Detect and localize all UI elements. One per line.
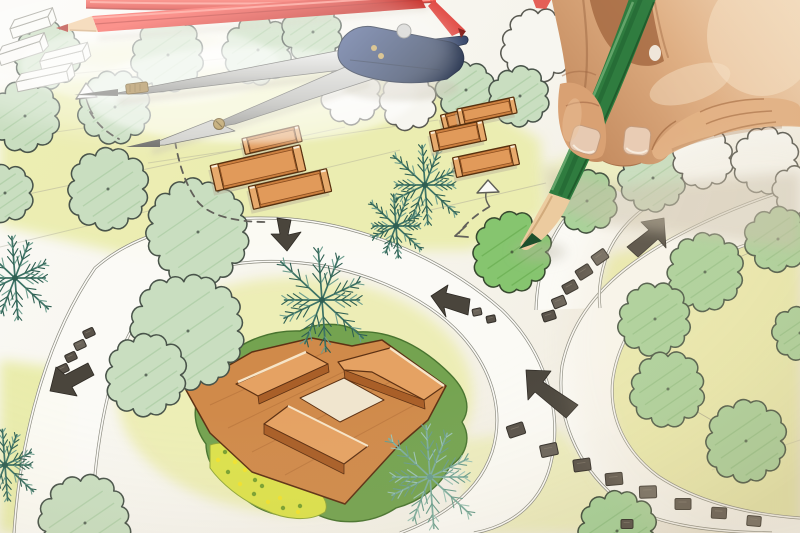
photo-scene bbox=[0, 0, 800, 533]
photo-light-overlays bbox=[0, 0, 800, 533]
photo-landscape-plan bbox=[0, 0, 800, 533]
light-overlay bbox=[0, 0, 800, 533]
